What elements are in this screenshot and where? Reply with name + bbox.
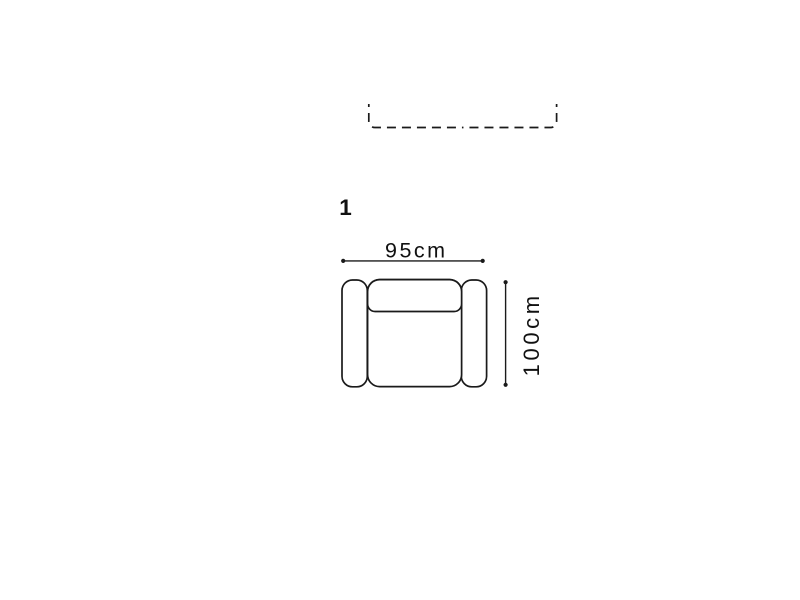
- svg-text:95cm: 95cm: [385, 238, 448, 262]
- svg-text:1: 1: [339, 195, 352, 220]
- svg-text:100cm: 100cm: [519, 292, 544, 376]
